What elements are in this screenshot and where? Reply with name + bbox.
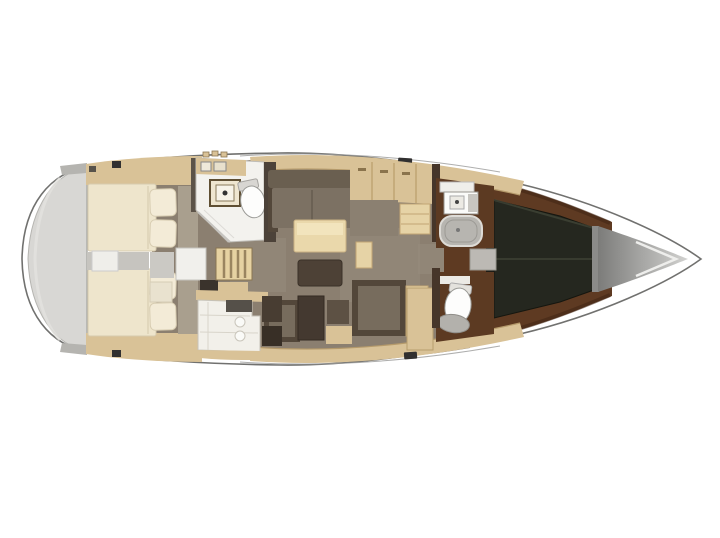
sofa-backrest (268, 170, 356, 188)
drawer-handle-icon (402, 172, 410, 175)
drain-icon (456, 228, 460, 232)
bulkhead-wall (432, 268, 440, 328)
sink-icon (235, 331, 245, 341)
nav-cabinet (326, 326, 352, 344)
sink-icon (235, 317, 245, 327)
double-berth (88, 269, 156, 336)
drawer-stack (400, 204, 430, 234)
deck-hatch-icon (404, 352, 417, 360)
vanity-shelf (440, 182, 474, 192)
drawer-handle-icon (358, 168, 366, 171)
pillow (150, 220, 177, 248)
sink-icon (201, 162, 211, 171)
drain-icon (223, 191, 228, 196)
cabin-hatch-icon (112, 161, 121, 168)
drawer-handle-icon (380, 170, 388, 173)
sink-icon (214, 162, 226, 171)
chart-table (298, 296, 324, 340)
cabin-hatch-icon (112, 350, 121, 357)
vanity-shelf (440, 276, 470, 284)
aft-cabin-bottom (86, 269, 202, 362)
drain-icon (455, 200, 459, 204)
wardrobe (407, 288, 433, 350)
sideboard (350, 159, 440, 242)
aft-cabin-top (86, 156, 202, 251)
forward-head-shower (436, 178, 494, 248)
ottoman (298, 260, 342, 286)
sofa-cushion (358, 286, 400, 330)
pillow (150, 189, 177, 217)
double-berth (88, 184, 156, 251)
mast-post-cabinet (356, 242, 372, 268)
floorplan-drawing (0, 0, 720, 538)
pillow (150, 303, 177, 331)
boat-floorplan (0, 0, 720, 538)
forward-cabin-door-step (470, 249, 496, 270)
shelf-items (203, 151, 227, 157)
nav-seat (327, 300, 349, 324)
stove-icon (226, 300, 252, 312)
companionway-steps (216, 248, 252, 292)
stern-swim-platform (28, 163, 87, 355)
